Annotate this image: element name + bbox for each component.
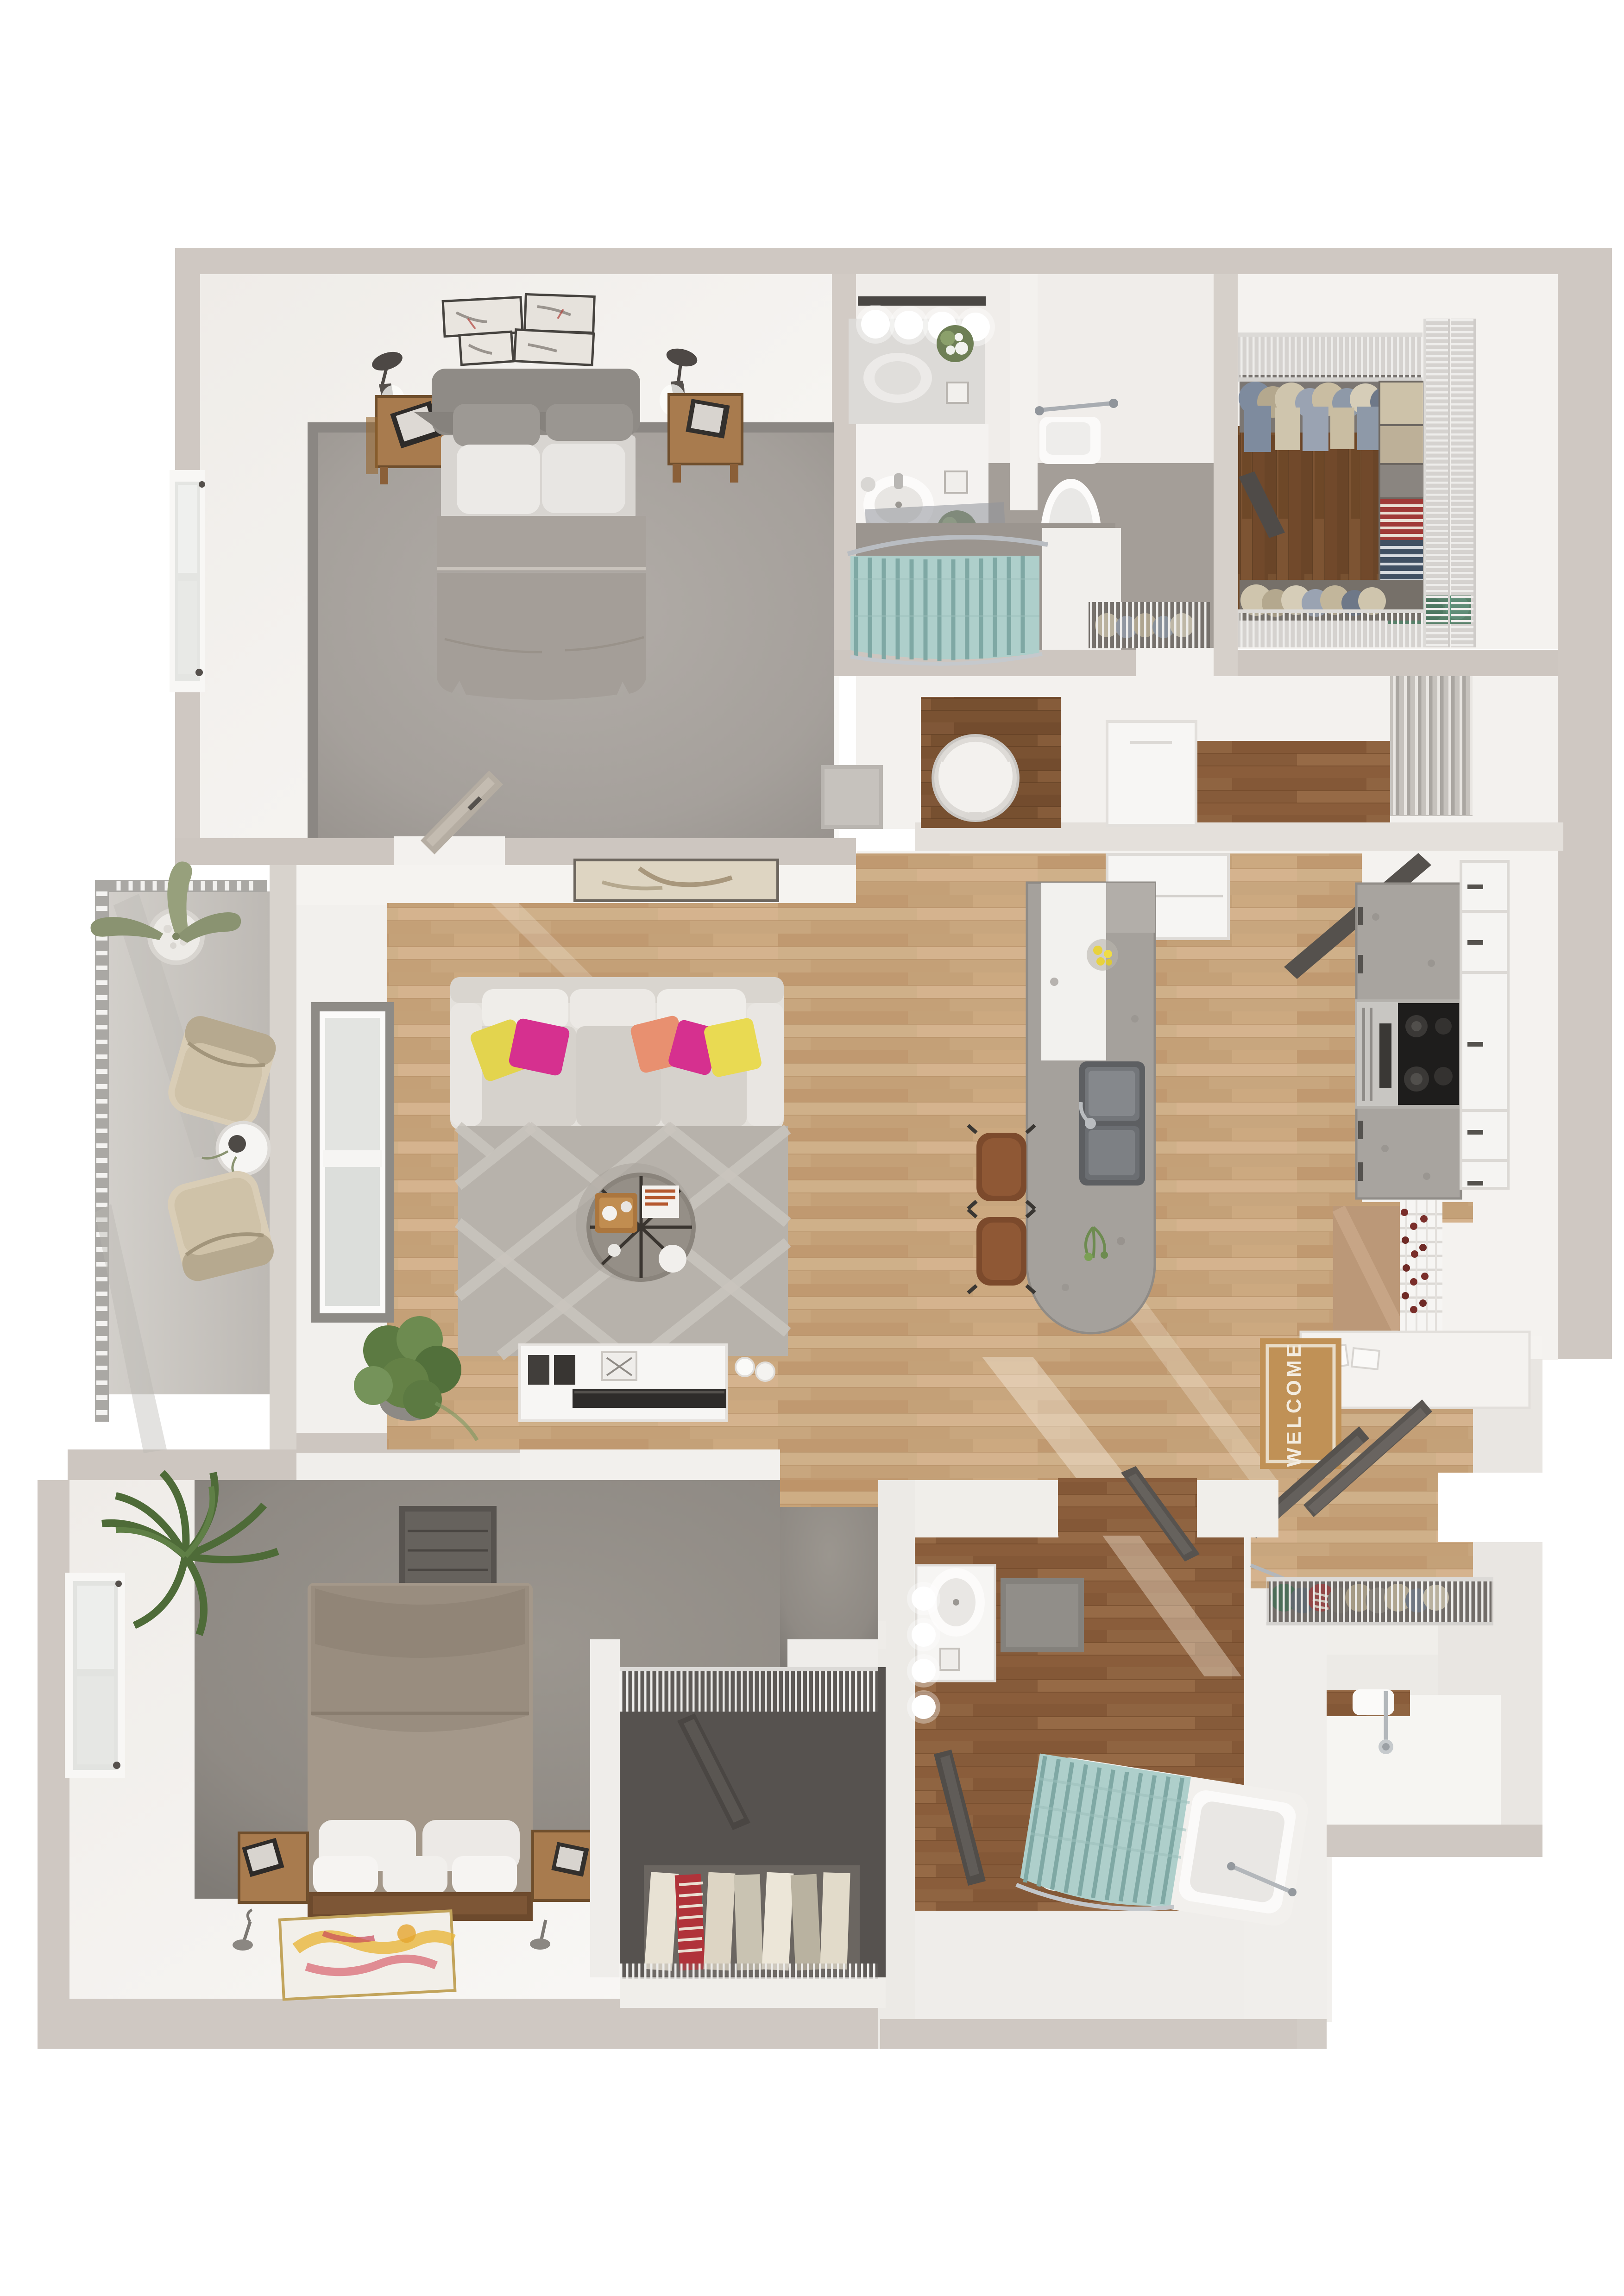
svg-text:WELCOME: WELCOME <box>1283 1341 1305 1467</box>
